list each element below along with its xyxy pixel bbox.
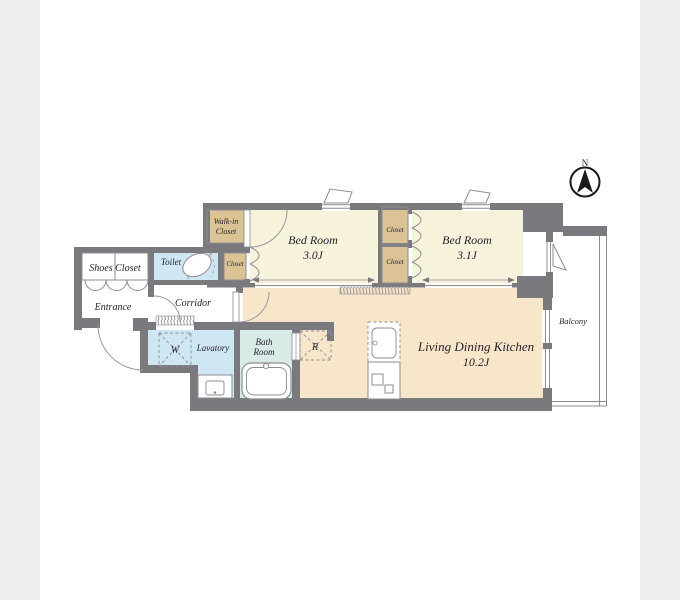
walk-in-closet-label-line2: Closet — [216, 227, 237, 236]
window-flap-icon — [464, 190, 490, 203]
door-leaf — [233, 292, 239, 322]
wall-segment — [546, 272, 553, 280]
wall-segment — [74, 247, 82, 330]
shoes-closet-door-scallops — [85, 280, 148, 291]
refrigerator-label: R — [311, 342, 318, 353]
wall-segment — [74, 247, 207, 253]
balcony-label: Balcony — [559, 316, 587, 326]
wall-segment — [218, 247, 224, 282]
wall-segment — [148, 322, 156, 330]
shoes-closet-label: Shoes Closet — [89, 263, 141, 274]
bath-room-label-line1: Bath — [256, 337, 273, 347]
closet-top-label: Closet — [386, 227, 404, 234]
entrance-door-arc — [98, 325, 143, 370]
door-track-hatch — [156, 316, 194, 325]
ldk-floor-mid — [334, 322, 543, 330]
bedroom2-size-label: 3.1J — [456, 250, 477, 262]
corridor-label: Corridor — [175, 298, 211, 309]
ldk-size-label: 10.2J — [463, 355, 490, 369]
wall-segment — [234, 330, 240, 398]
wall-segment — [207, 283, 255, 288]
wall-segment — [148, 253, 154, 297]
wall-segment — [74, 318, 100, 328]
bath-room-label-line2: Room — [253, 347, 275, 357]
wall-segment — [546, 232, 553, 242]
wall-segment — [408, 205, 412, 214]
kitchen-stove-unit — [368, 362, 400, 399]
bedroom2-label: Bed Room — [442, 233, 492, 247]
door-track-hatch — [340, 287, 410, 294]
closet-bottom-label: Closet — [386, 259, 404, 266]
wall-segment — [203, 243, 250, 253]
wall-segment — [194, 322, 334, 330]
ldk-label: Living Dining Kitchen — [417, 339, 534, 354]
window-top-2 — [462, 203, 490, 212]
window-top-1 — [322, 203, 350, 212]
window-flap-icon — [553, 244, 566, 270]
window-flap-icon — [324, 189, 352, 203]
wall-segment — [563, 226, 607, 236]
wall-segment — [190, 398, 552, 411]
north-label: N — [582, 158, 589, 168]
closet-top-floor — [382, 207, 408, 244]
bath-faucet-icon — [263, 363, 268, 368]
ldk-window-1 — [542, 310, 553, 343]
lavatory-label: Lavatory — [196, 343, 230, 353]
ldk-window-2 — [542, 349, 553, 388]
walk-in-closet-label-line1: Walk-in — [214, 217, 239, 226]
wall-segment — [523, 203, 563, 232]
hall-closet-label: Closet — [226, 261, 244, 268]
floor-plan-drawing: Shoes Closet Entrance Toilet Corridor Wa… — [0, 0, 680, 600]
toilet-label: Toilet — [161, 257, 182, 267]
vanity-drain — [214, 391, 217, 394]
wall-segment — [190, 372, 198, 402]
door-leaf — [244, 210, 250, 247]
bedroom1-size-label: 3.0J — [302, 250, 323, 262]
compass — [571, 168, 600, 197]
wall-segment — [292, 359, 300, 400]
floor-plan-page: Shoes Closet Entrance Toilet Corridor Wa… — [0, 0, 680, 600]
entrance-label: Entrance — [94, 302, 132, 313]
bedroom1-label: Bed Room — [288, 233, 338, 247]
